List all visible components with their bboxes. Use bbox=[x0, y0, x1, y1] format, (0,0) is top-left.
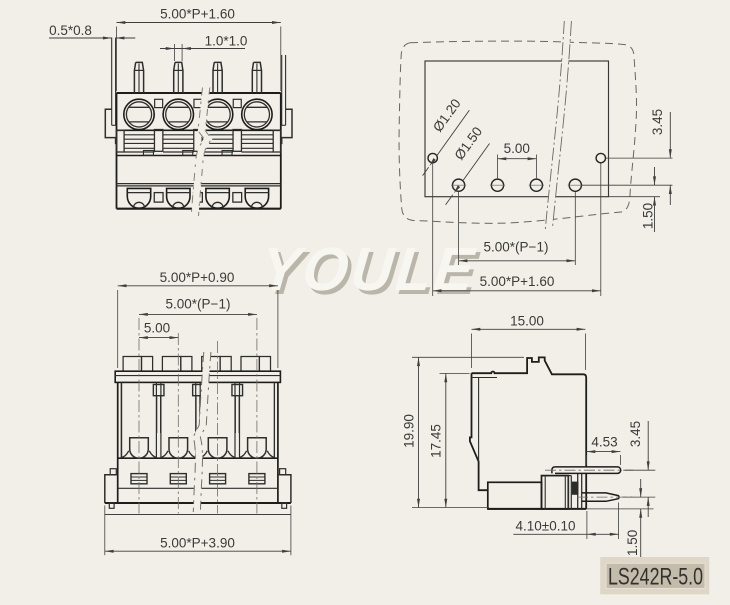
svg-text:5.00*P+1.60: 5.00*P+1.60 bbox=[160, 7, 235, 22]
svg-text:5.00*(P−1): 5.00*(P−1) bbox=[484, 240, 549, 255]
svg-text:1.50: 1.50 bbox=[641, 203, 656, 229]
svg-text:5.00*P+0.90: 5.00*P+0.90 bbox=[160, 270, 235, 285]
svg-text:5.00*(P−1): 5.00*(P−1) bbox=[166, 296, 231, 311]
svg-text:YOULE: YOULE bbox=[258, 235, 480, 303]
svg-text:LS242R-5.0: LS242R-5.0 bbox=[608, 564, 703, 591]
svg-text:17.45: 17.45 bbox=[429, 424, 444, 458]
svg-text:4.10±0.10: 4.10±0.10 bbox=[516, 519, 576, 534]
svg-text:3.45: 3.45 bbox=[628, 421, 643, 447]
svg-text:5.00*P+3.90: 5.00*P+3.90 bbox=[160, 535, 235, 550]
svg-text:0.5*0.8: 0.5*0.8 bbox=[49, 23, 92, 38]
svg-text:19.90: 19.90 bbox=[402, 414, 417, 448]
svg-text:5.00*P+1.60: 5.00*P+1.60 bbox=[480, 274, 555, 289]
svg-text:1.50: 1.50 bbox=[625, 530, 640, 556]
svg-text:5.00: 5.00 bbox=[504, 141, 530, 156]
svg-text:4.53: 4.53 bbox=[591, 435, 617, 450]
svg-text:5.00: 5.00 bbox=[144, 321, 170, 336]
svg-text:3.45: 3.45 bbox=[650, 109, 665, 135]
svg-text:15.00: 15.00 bbox=[510, 313, 544, 328]
svg-text:1.0*1.0: 1.0*1.0 bbox=[205, 34, 248, 49]
